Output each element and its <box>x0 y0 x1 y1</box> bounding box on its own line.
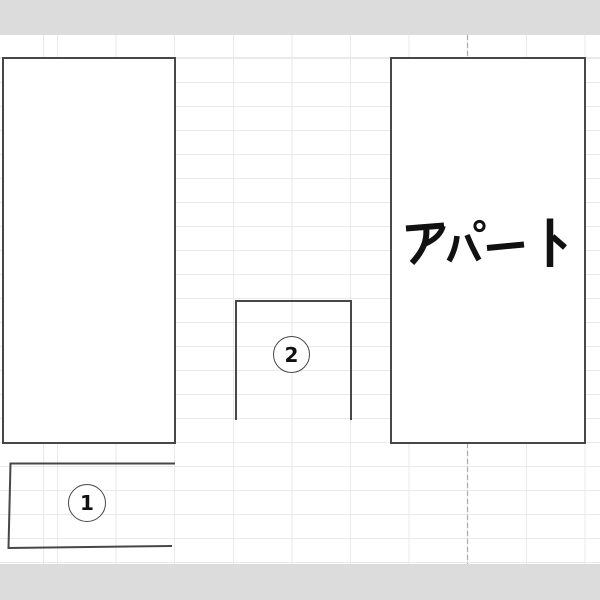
apartment-label <box>400 214 576 272</box>
marker-2-number: 2 <box>285 345 299 365</box>
katakana-to-glyph <box>550 219 565 268</box>
building-left[interactable] <box>3 58 175 443</box>
marker-1-number: 1 <box>80 493 94 513</box>
katakana-chouon-glyph <box>487 245 524 249</box>
katakana-pa-glyph <box>449 221 484 261</box>
marker-1[interactable]: 1 <box>68 484 106 522</box>
spreadsheet-canvas: アパート 1 2 <box>0 0 600 600</box>
marker-2[interactable]: 2 <box>273 336 310 373</box>
katakana-a-glyph <box>406 226 444 264</box>
